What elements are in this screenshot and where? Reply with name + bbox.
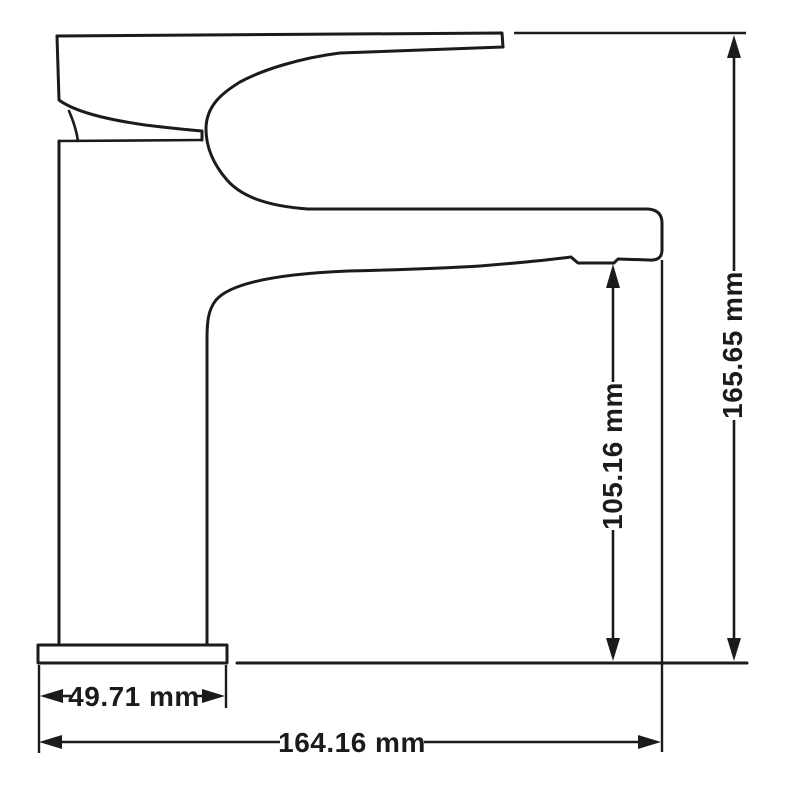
faucet-dimension-drawing: 165.65 mm 105.16 mm 49.71 mm bbox=[0, 0, 800, 800]
dimension-base-width: 49.71 mm bbox=[39, 665, 226, 753]
lever-left-bottom-edge bbox=[57, 36, 202, 140]
lever-handle-outline bbox=[57, 33, 503, 129]
dimension-spout-height: 105.16 mm bbox=[597, 264, 628, 661]
technical-drawing-page: 165.65 mm 105.16 mm 49.71 mm bbox=[0, 0, 800, 800]
spout-height-label: 105.16 mm bbox=[597, 382, 628, 530]
arrow-up-icon bbox=[727, 35, 741, 58]
base-width-label: 49.71 mm bbox=[68, 681, 200, 712]
cartridge-dome-arc bbox=[69, 111, 78, 141]
arrow-up-icon bbox=[606, 264, 620, 288]
arrow-left-icon bbox=[40, 689, 63, 703]
dimension-annotations: 165.65 mm 105.16 mm 49.71 mm bbox=[39, 33, 748, 758]
arrow-right-icon bbox=[638, 735, 661, 749]
arrow-down-icon bbox=[727, 638, 741, 661]
overall-length-label: 164.16 mm bbox=[278, 727, 426, 758]
arrow-right-icon bbox=[202, 689, 225, 703]
dimension-overall-length: 164.16 mm bbox=[39, 727, 661, 758]
spout-body-outline bbox=[206, 129, 662, 645]
arrow-down-icon bbox=[606, 638, 620, 661]
dimension-overall-height: 165.65 mm bbox=[514, 33, 748, 661]
base-plate bbox=[38, 645, 227, 663]
arrow-left-icon bbox=[39, 735, 62, 749]
faucet-outline bbox=[38, 33, 747, 663]
overall-height-label: 165.65 mm bbox=[717, 271, 748, 419]
body-top-seam bbox=[59, 140, 202, 141]
